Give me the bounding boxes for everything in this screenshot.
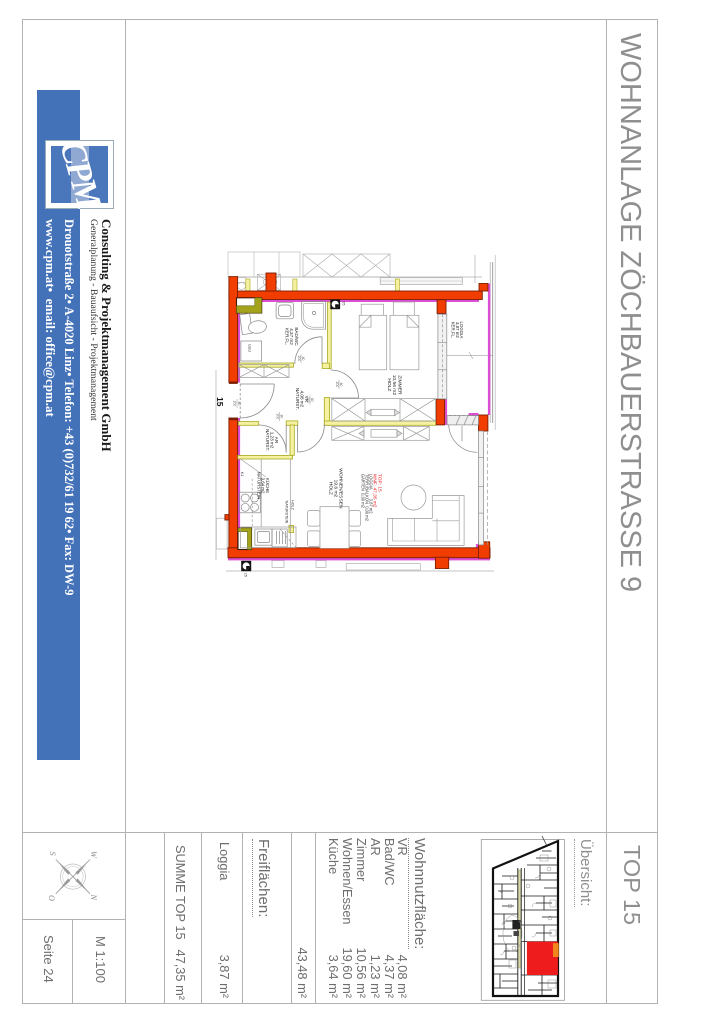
- svg-text:80: 80: [280, 415, 284, 419]
- svg-text:80: 80: [301, 357, 305, 361]
- svg-text:K1: K1: [240, 472, 244, 476]
- svg-text:S: S: [48, 852, 57, 856]
- svg-text:200: 200: [335, 382, 339, 388]
- svg-text:KÜCHE: KÜCHE: [265, 478, 270, 493]
- svg-text:1,23 m2: 1,23 m2: [269, 432, 274, 449]
- svg-text:25: 25: [342, 301, 347, 306]
- svg-text:LOGGIA: LOGGIA: [459, 321, 464, 338]
- svg-text:25: 25: [244, 573, 249, 578]
- svg-text:15: 15: [215, 397, 225, 407]
- svg-text:3,64 m2: 3,64 m2: [261, 478, 266, 494]
- svg-text:GARTEN 0,00 m2: GARTEN 0,00 m2: [360, 474, 365, 509]
- svg-text:NATURST.: NATURST.: [295, 388, 300, 410]
- svg-text:ZIMMER: ZIMMER: [397, 375, 403, 395]
- svg-text:3,87 m2: 3,87 m2: [455, 322, 460, 338]
- svg-text:200: 200: [275, 414, 279, 420]
- svg-text:O: O: [47, 895, 56, 901]
- svg-text:W: W: [89, 851, 98, 859]
- svg-text:KER.FL.: KER.FL.: [451, 322, 456, 339]
- svg-text:WOHNEN/ESSEN: WOHNEN/ESSEN: [338, 468, 344, 509]
- svg-text:BAD/WC: BAD/WC: [294, 327, 299, 346]
- svg-text:NATURSTEIN: NATURSTEIN: [285, 501, 289, 524]
- svg-text:200: 200: [306, 397, 310, 403]
- svg-text:200: 200: [297, 356, 301, 362]
- svg-text:AR: AR: [274, 437, 279, 444]
- svg-text:NATURST.: NATURST.: [265, 429, 270, 451]
- svg-text:80: 80: [339, 383, 343, 387]
- svg-text:N: N: [89, 894, 98, 901]
- svg-text:200: 200: [232, 401, 236, 407]
- svg-text:80: 80: [310, 398, 314, 402]
- svg-text:HOLZ: HOLZ: [291, 500, 295, 510]
- svg-text:WM: WM: [247, 344, 252, 352]
- svg-text:NATURSTEIN: NATURSTEIN: [256, 472, 261, 500]
- svg-text:4,37 m2: 4,37 m2: [289, 328, 294, 345]
- svg-text:TOP: 15: TOP: 15: [377, 474, 383, 492]
- svg-text:KER.FL.: KER.FL.: [284, 328, 289, 345]
- svg-text:4,08 m2: 4,08 m2: [299, 391, 304, 408]
- svg-text:80: 80: [237, 402, 241, 406]
